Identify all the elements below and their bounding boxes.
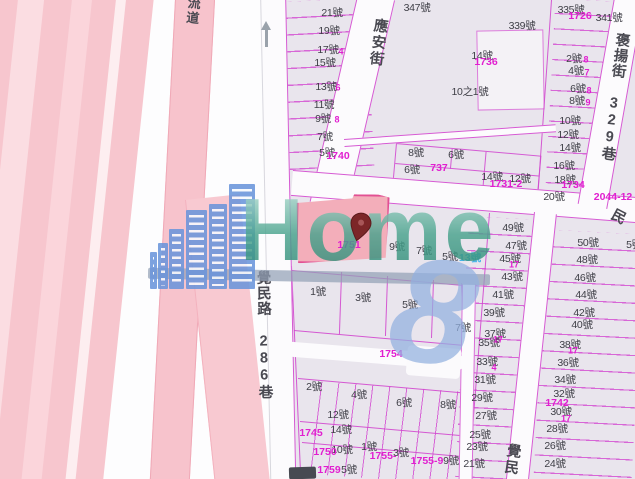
house-number-label: 24號 <box>544 459 565 470</box>
house-number-label: 46號 <box>574 273 595 284</box>
house-number-label: 6號 <box>396 398 412 409</box>
house-number-label: 14號 <box>330 425 351 436</box>
house-number-label: 43號 <box>501 272 522 283</box>
cutoff-marker <box>289 467 316 479</box>
house-number-label: 50號 <box>577 238 598 249</box>
parcel-small-number-label: 7 <box>584 69 589 78</box>
house-number-label: 19號 <box>318 26 339 37</box>
house-number-label: 5號 <box>341 465 357 476</box>
street-label-juemin-286: 覺民路 286巷 <box>255 270 272 400</box>
house-number-label: 39號 <box>483 308 504 319</box>
house-number-label: 27號 <box>475 411 496 422</box>
house-number-label: 40號 <box>571 320 592 331</box>
parcel-number-label: 1726 <box>568 11 591 22</box>
house-number-label: 7號 <box>455 323 471 334</box>
house-number-label: 7號 <box>416 246 432 257</box>
house-number-label: 23號 <box>466 442 487 453</box>
house-number-label: 6號 <box>448 150 464 161</box>
parcel-number-label: 1734 <box>561 180 584 191</box>
parcel-number-label: 1742 <box>545 398 568 409</box>
house-number-label: 3號 <box>355 293 371 304</box>
house-number-label: 42號 <box>573 308 594 319</box>
house-number-label: 47號 <box>505 241 526 252</box>
house-number-label: 34號 <box>554 375 575 386</box>
parcel-small-number-label: 4 <box>491 364 496 373</box>
house-number-label: 8號 <box>440 400 456 411</box>
parcel-number-label: 1736 <box>474 57 497 68</box>
street-label-ramp: 流道 <box>184 0 200 27</box>
house-number-label: 28號 <box>546 424 567 435</box>
house-number-label: 5號 <box>402 300 418 311</box>
house-number-label: 26號 <box>544 441 565 452</box>
parcel-small-number-label: 8 <box>583 56 588 65</box>
house-number-label: 14號 <box>559 143 580 154</box>
house-number-label: 9號 <box>315 114 331 125</box>
parcel-number-label: 1731-2 <box>490 179 523 190</box>
house-number-label: 1號 <box>310 287 326 298</box>
parcel-number-label: 2044-12 <box>594 192 633 203</box>
house-number-label: 8號 <box>408 148 424 159</box>
parcel-small-number-label: 17 <box>561 415 571 424</box>
house-number-label: 9號 <box>389 242 405 253</box>
house-number-label: 4號 <box>568 66 584 77</box>
house-number-label: 5號 <box>626 240 635 251</box>
house-number-label: 21號 <box>321 8 342 19</box>
house-number-label: 44號 <box>575 290 596 301</box>
parcel-strip-1754-end <box>406 345 462 379</box>
house-number-label: 5號 <box>442 252 458 263</box>
parcel-number-label: 1755-9 <box>411 456 444 467</box>
house-number-label: 9號 <box>443 456 459 467</box>
house-number-label: 13號 <box>315 82 336 93</box>
parcel-small-number-label: 17 <box>493 336 503 345</box>
highlighted-parcel-1751[interactable] <box>295 193 389 265</box>
parcel-small-number-label: 9 <box>585 99 590 108</box>
parcel-small-number-label: 4 <box>338 48 343 57</box>
house-number-label: 12號 <box>327 410 348 421</box>
parcel-small-number-label: 8 <box>334 116 339 125</box>
house-number-label: 8號 <box>569 96 585 107</box>
house-number-label: 21號 <box>463 459 484 470</box>
parcel-number-label: 1745 <box>299 428 322 439</box>
parcel-number-label: 1755- <box>370 451 397 462</box>
house-number-label: 11號 <box>314 100 335 111</box>
house-number-label: 48號 <box>576 255 597 266</box>
house-number-label: 6號 <box>404 165 420 176</box>
parcel-number-label: 1759 <box>317 465 340 476</box>
house-number-label: 2號 <box>566 54 582 65</box>
house-number-label: 41號 <box>492 290 513 301</box>
house-number-label: 10之1號 <box>451 87 488 98</box>
house-number-label: 2號 <box>306 382 322 393</box>
parcel-number-label: 737 <box>430 163 448 174</box>
house-number-label: 4號 <box>351 390 367 401</box>
street-label-juemin: 覺民 <box>502 442 521 477</box>
house-number-label: 6號 <box>570 84 586 95</box>
house-number-label: 12號 <box>557 130 578 141</box>
house-number-label: 341號 <box>596 13 623 24</box>
house-number-label: 29號 <box>471 393 492 404</box>
house-number-label: 7號 <box>317 132 333 143</box>
parcel-small-number-label: 17 <box>509 261 519 270</box>
building-icon <box>150 252 157 289</box>
house-number-label: 31號 <box>474 375 495 386</box>
house-number-label: 49號 <box>502 223 523 234</box>
map-viewport: 應安街 褒揚街 329巷 覺民路 286巷 覺民 民 流道 21號19號17號1… <box>0 0 635 479</box>
house-number-label: 36號 <box>557 358 578 369</box>
house-number-label: 17號 <box>317 45 338 56</box>
parcel-light-square <box>476 29 544 110</box>
house-number-label: 347號 <box>404 3 431 14</box>
house-number-label: 339號 <box>509 21 536 32</box>
parcel-number-label: 1740 <box>326 151 349 162</box>
house-number-label: 20號 <box>543 192 564 203</box>
parcel-number-label: 1754 <box>379 349 402 360</box>
house-number-label: 10號 <box>559 116 580 127</box>
house-number-label: 15號 <box>314 58 335 69</box>
parcel-small-number-label: 17 <box>568 347 578 356</box>
parcel-small-number-label: 6 <box>335 84 340 93</box>
house-number-label: 16號 <box>553 161 574 172</box>
house-number-label: 25號 <box>469 430 490 441</box>
selected-number-label: 13號 <box>459 253 481 264</box>
parcel-small-number-label: 8 <box>586 87 591 96</box>
parcel-number-label: 1750 <box>313 447 336 458</box>
